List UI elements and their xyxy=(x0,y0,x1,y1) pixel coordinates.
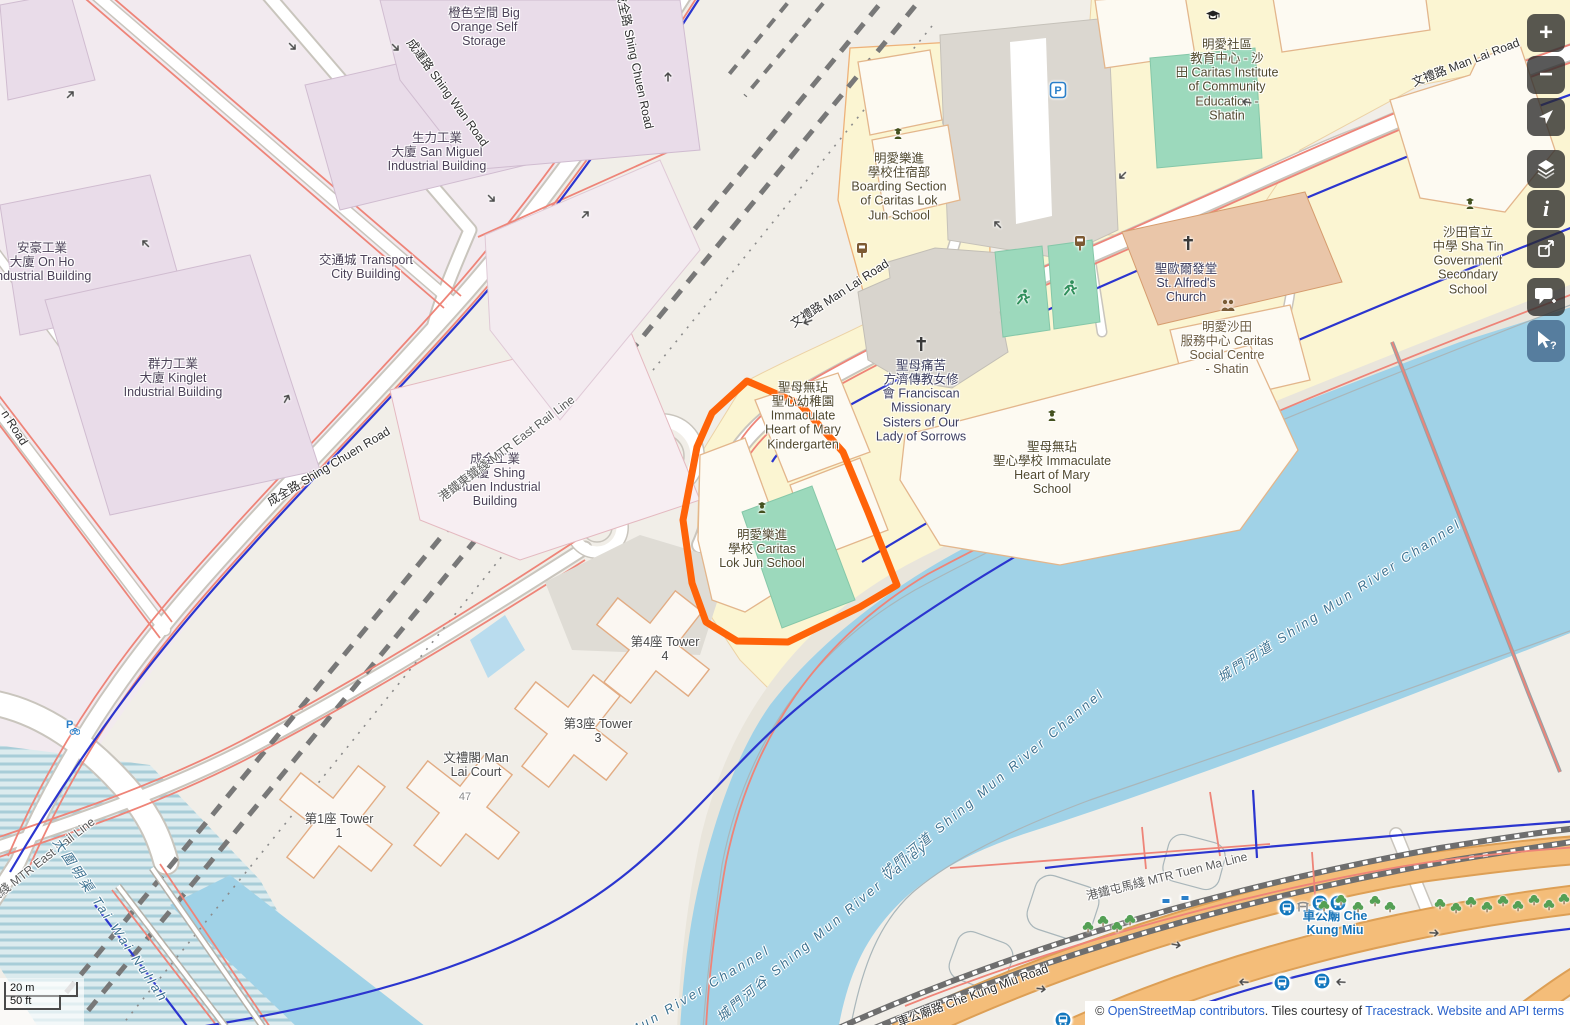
share-button[interactable] xyxy=(1527,230,1565,268)
query-cursor-icon: ? xyxy=(1534,330,1558,352)
add-note-button[interactable] xyxy=(1527,278,1565,316)
layers-button[interactable] xyxy=(1527,150,1565,188)
map-viewport[interactable]: 橙色空間 Big Orange Self Storage生力工業 大廈 San … xyxy=(0,0,1570,1025)
info-button[interactable]: i xyxy=(1527,190,1565,228)
zoom-in-button[interactable]: + xyxy=(1527,14,1565,52)
zoom-out-button[interactable]: − xyxy=(1527,56,1565,94)
map-canvas[interactable] xyxy=(0,0,1570,1025)
note-bubble-icon xyxy=(1535,287,1557,307)
tracestrack-link[interactable]: Tracestrack xyxy=(1365,1004,1430,1018)
minus-icon: − xyxy=(1539,63,1553,87)
che-kung-miu-road-band xyxy=(905,850,1570,1025)
query-features-button[interactable]: ? xyxy=(1527,320,1565,362)
scale-imperial: 50 ft xyxy=(4,995,61,1010)
locate-button[interactable] xyxy=(1527,98,1565,136)
attribution-bar: © OpenStreetMap contributors. Tiles cour… xyxy=(1085,1001,1570,1025)
terms-link[interactable]: Website and API terms xyxy=(1437,1004,1564,1018)
svg-text:?: ? xyxy=(1550,340,1557,352)
info-icon: i xyxy=(1543,198,1549,220)
copyright-text: © xyxy=(1095,1004,1108,1018)
locate-arrow-icon xyxy=(1537,108,1555,126)
share-icon xyxy=(1537,240,1556,259)
osm-contributors-link[interactable]: OpenStreetMap contributors xyxy=(1108,1004,1265,1018)
plus-icon: + xyxy=(1539,21,1553,45)
layers-icon xyxy=(1536,159,1556,179)
scale-control: 20 m 50 ft xyxy=(0,978,84,1025)
